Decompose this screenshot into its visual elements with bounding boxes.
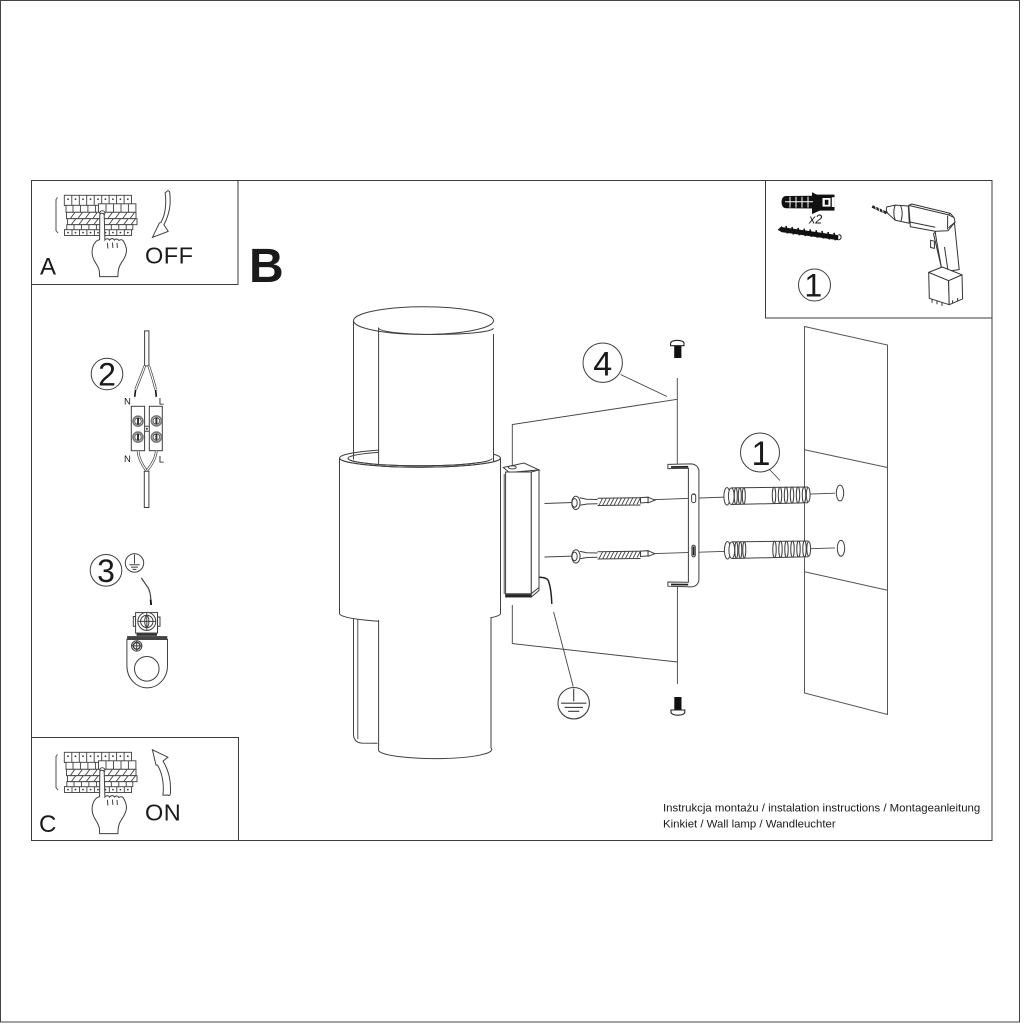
svg-text:L: L bbox=[159, 455, 164, 466]
svg-text:B: B bbox=[249, 240, 284, 293]
svg-text:ON: ON bbox=[145, 800, 181, 826]
svg-text:C: C bbox=[39, 811, 56, 838]
svg-text:Kinkiet / Wall lamp / Wandleuc: Kinkiet / Wall lamp / Wandleuchter bbox=[663, 819, 836, 831]
svg-text:x2: x2 bbox=[808, 213, 822, 227]
svg-text:1: 1 bbox=[804, 268, 822, 304]
svg-text:4: 4 bbox=[593, 345, 612, 383]
svg-text:N: N bbox=[124, 397, 131, 408]
svg-text:3: 3 bbox=[97, 553, 115, 589]
svg-text:Instrukcja montażu / instalati: Instrukcja montażu / instalation instruc… bbox=[663, 803, 980, 815]
svg-text:A: A bbox=[40, 254, 56, 281]
svg-text:1: 1 bbox=[752, 435, 771, 473]
svg-text:OFF: OFF bbox=[145, 243, 194, 269]
svg-text:N: N bbox=[124, 454, 131, 465]
svg-text:2: 2 bbox=[98, 357, 116, 393]
svg-text:L: L bbox=[159, 397, 164, 408]
